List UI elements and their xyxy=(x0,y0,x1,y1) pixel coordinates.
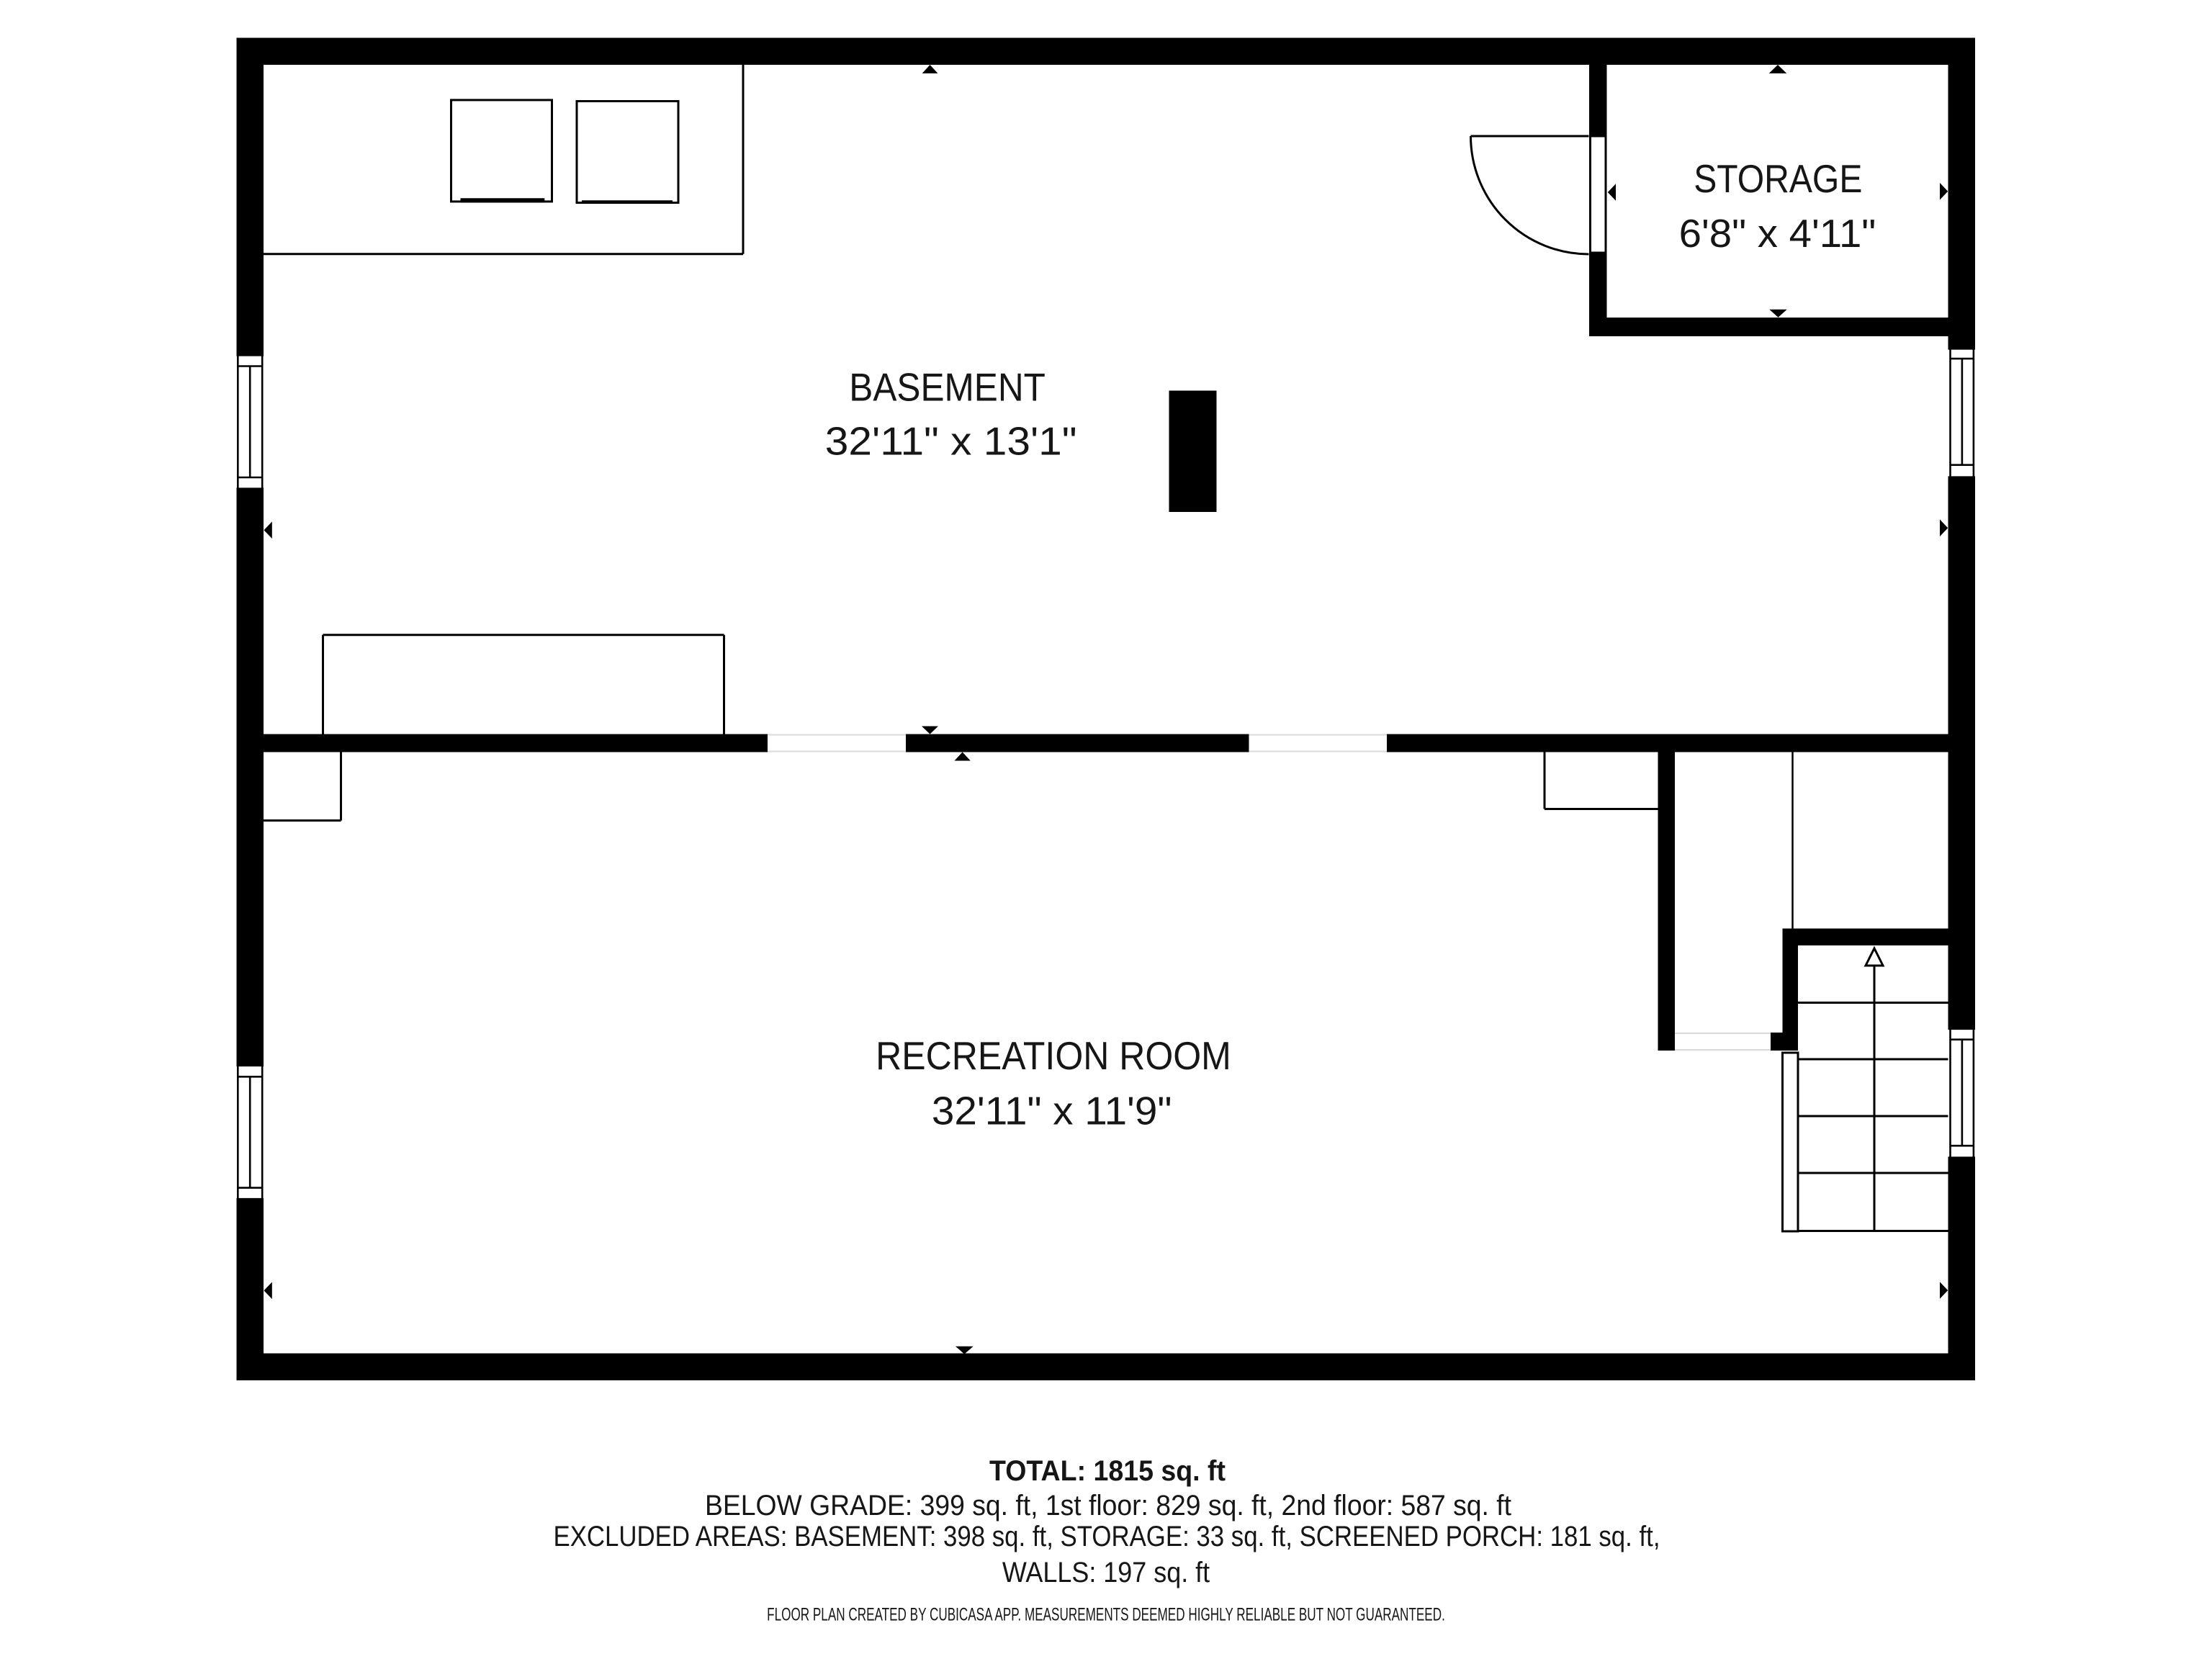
svg-text:BASEMENT: BASEMENT xyxy=(849,364,1046,409)
svg-text:EXCLUDED AREAS: BASEMENT: 398: EXCLUDED AREAS: BASEMENT: 398 sq. ft, ST… xyxy=(554,1521,1660,1552)
svg-text:BELOW GRADE: 399 sq. ft, 1st f: BELOW GRADE: 399 sq. ft, 1st floor: 829 … xyxy=(705,1490,1511,1521)
svg-text:32'11" x 11'9": 32'11" x 11'9" xyxy=(932,1089,1172,1133)
svg-text:TOTAL: 1815 sq. ft: TOTAL: 1815 sq. ft xyxy=(989,1455,1226,1487)
svg-text:FLOOR PLAN CREATED BY CUBICASA: FLOOR PLAN CREATED BY CUBICASA APP. MEAS… xyxy=(767,1605,1445,1625)
svg-text:WALLS: 197 sq. ft: WALLS: 197 sq. ft xyxy=(1002,1557,1210,1588)
svg-text:6'8" x 4'11": 6'8" x 4'11" xyxy=(1679,211,1876,256)
svg-text:32'11" x 13'1": 32'11" x 13'1" xyxy=(825,419,1077,464)
svg-text:RECREATION ROOM: RECREATION ROOM xyxy=(876,1033,1231,1078)
svg-text:STORAGE: STORAGE xyxy=(1694,156,1862,201)
